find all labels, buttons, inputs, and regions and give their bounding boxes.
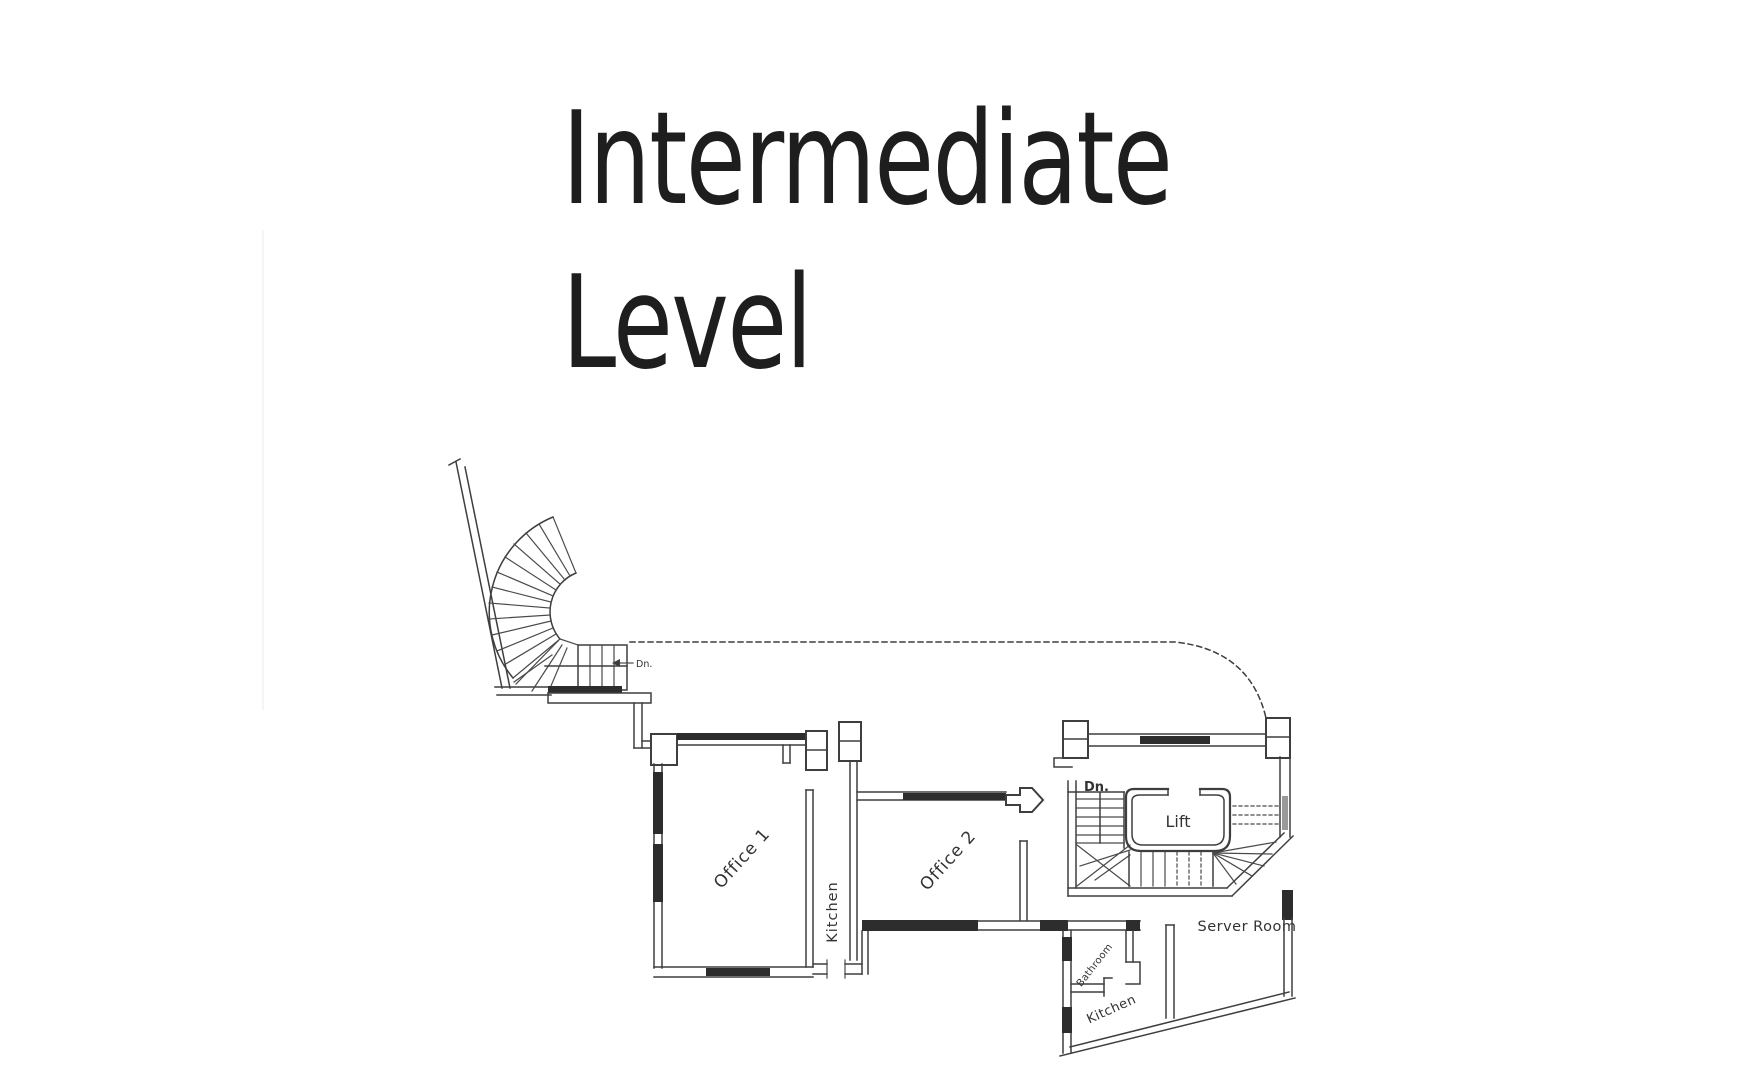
stair-down-spiral-label: Dn. (636, 659, 652, 670)
direction-arrow (1006, 788, 1043, 812)
door-bar (1062, 1007, 1072, 1033)
room-label-office-2: Office 2 (916, 826, 980, 894)
room-label-office-1: Office 1 (710, 824, 774, 892)
right-wing-top-wall (1054, 718, 1290, 767)
stair-landing (548, 686, 677, 765)
rear-kitchen-server-walls (1060, 925, 1295, 1056)
lift-stairs-left-flight (1076, 792, 1124, 848)
upper-level-dashed-outline (630, 642, 1266, 718)
door-jamb (1126, 962, 1140, 984)
corridor-wall (862, 920, 1140, 931)
room-label-kitchen-main: Kitchen (825, 881, 841, 943)
straight-stair-run: Dn. (545, 645, 652, 690)
floorplan-drawing: Dn. Office 1 (0, 0, 1755, 1080)
corner-pillar (651, 734, 677, 765)
stair-down-lift-label: Dn. (1084, 780, 1109, 795)
window-bar (653, 844, 663, 902)
window-bar (653, 772, 663, 834)
window-bar (706, 968, 770, 976)
room-label-lift: Lift (1166, 812, 1191, 831)
door-bar (1062, 937, 1072, 961)
lift-stairs-bottom-flight (1129, 852, 1213, 886)
room-label-bathroom: Bathroom (1075, 942, 1115, 989)
lift-stairwell: Dn. Lift (1068, 780, 1293, 896)
window-bar (1140, 736, 1210, 744)
spiral-staircase (489, 517, 578, 695)
lift-stairs-upper-dashed (1233, 806, 1280, 824)
wall-pillar (1266, 718, 1290, 758)
lift-stairs-winders-left (1077, 845, 1130, 886)
right-outer-wall (1280, 757, 1293, 996)
window-bar (1282, 796, 1288, 830)
room-label-server-room: Server Room (1198, 919, 1297, 935)
room-label-kitchen-rear: Kitchen (1085, 992, 1139, 1027)
scanned-floorplan-page: Intermediate Level (0, 0, 1755, 1080)
